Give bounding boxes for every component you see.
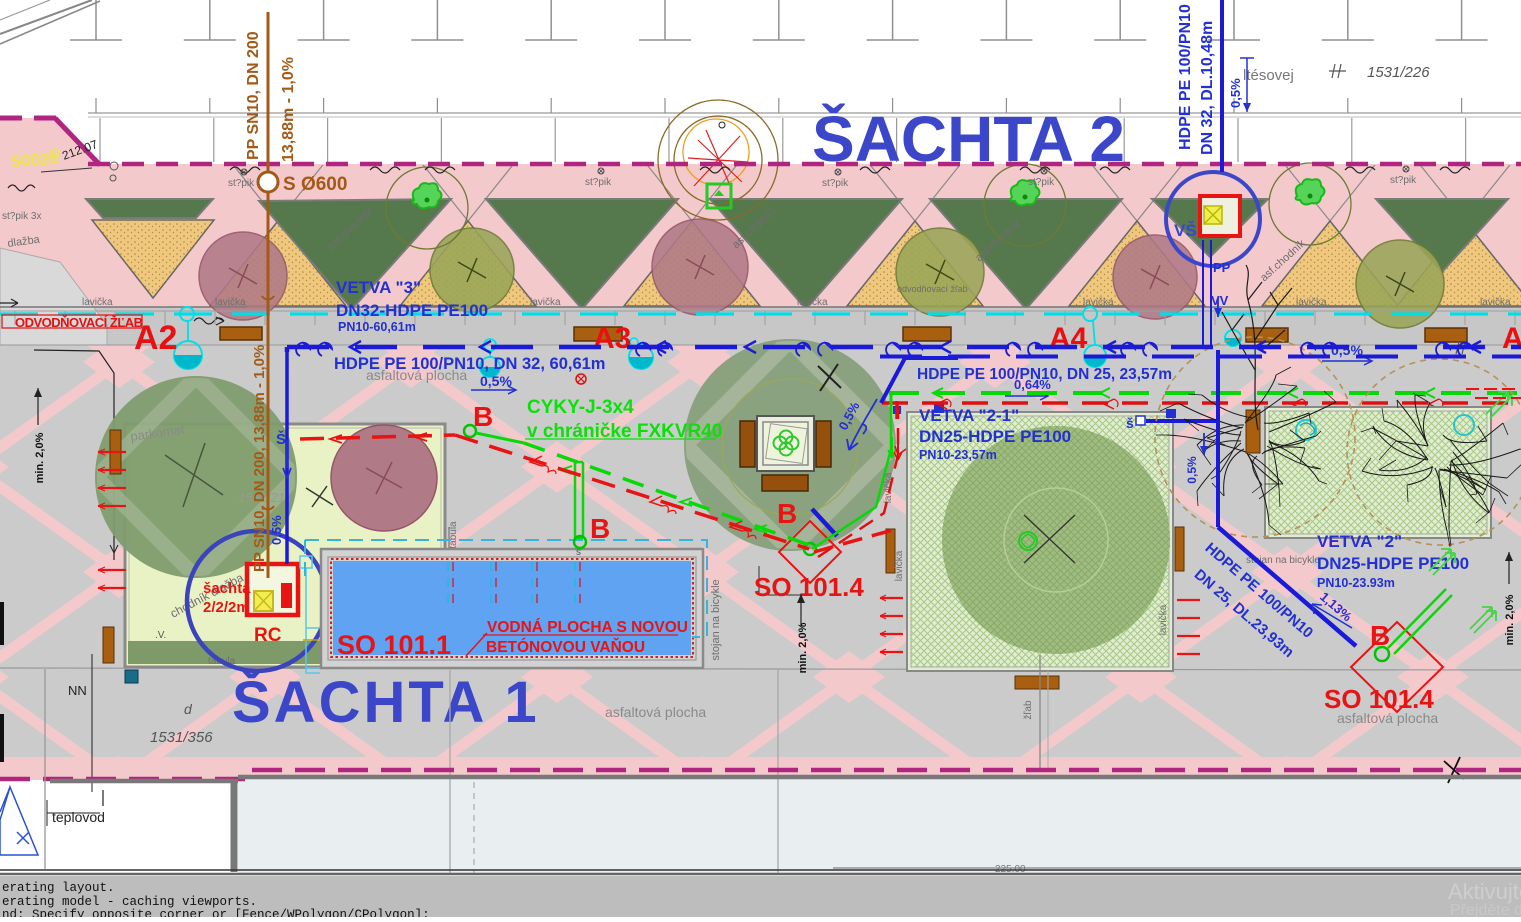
svg-text:st?pik: st?pik [1028,177,1055,188]
svg-text:lavička: lavička [1480,297,1511,308]
svg-text:A4: A4 [1049,322,1088,355]
svg-text:lavička: lavička [530,297,561,308]
svg-text:ŠACHTA 2: ŠACHTA 2 [812,102,1125,175]
svg-text:lavička: lavička [1158,604,1169,635]
svg-text:st?pik: st?pik [228,178,255,189]
svg-text:lavička: lavička [1296,297,1327,308]
svg-text:Aktivujte: Aktivujte [1448,879,1521,904]
svg-text:nd: Specify opposite corner or: nd: Specify opposite corner or [Fence/WP… [2,908,430,917]
svg-text:lavička: lavička [894,550,905,581]
svg-text:0,5%: 0,5% [269,515,284,545]
svg-text:st?pik: st?pik [1390,175,1417,186]
svg-text:.V.: .V. [155,630,166,641]
svg-text:CYKY-J-3x4: CYKY-J-3x4 [527,397,634,418]
svg-text:SO 101.4: SO 101.4 [1324,684,1434,714]
svg-text:HDPE PE 100/PN10, DN 32, 60,61: HDPE PE 100/PN10, DN 32, 60,61m [334,355,605,373]
svg-text:1531/356: 1531/356 [150,729,213,746]
svg-text:teplovod: teplovod [52,809,105,825]
svg-text:erating model - caching viewpo: erating model - caching viewports. [2,895,257,909]
svg-text:DN25-HDPE PE100: DN25-HDPE PE100 [1317,554,1469,573]
svg-text:RC: RC [254,625,282,646]
svg-text:B: B [777,498,797,529]
svg-text:PN10-23.93m: PN10-23.93m [1317,576,1395,590]
svg-text:lavička: lavička [1083,297,1114,308]
svg-text:asfaltová plocha: asfaltová plocha [605,704,706,720]
svg-text:lavička: lavička [215,297,246,308]
svg-text:SO 101.4: SO 101.4 [754,572,864,602]
svg-text:SO 101.1: SO 101.1 [337,630,451,660]
svg-text:š: š [1126,415,1134,431]
svg-text:50020: 50020 [11,149,59,171]
svg-text:B: B [590,513,610,544]
svg-text:DN32-HDPE PE100: DN32-HDPE PE100 [336,301,488,320]
svg-text:Přejděte do: Přejděte do [1450,902,1521,917]
svg-text:13,88m - 1,0%: 13,88m - 1,0% [280,57,297,162]
svg-text:lavička: lavička [82,297,113,308]
svg-text:ltésovej: ltésovej [1243,67,1294,84]
svg-text:VŠ: VŠ [1174,221,1197,240]
svg-text:0,5%: 0,5% [1185,456,1199,484]
svg-text:NN: NN [68,683,87,698]
svg-text:erating layout.: erating layout. [2,881,115,895]
svg-text:2/2/2m: 2/2/2m [203,599,250,616]
svg-text:BETÓNOVOU VAŇOU: BETÓNOVOU VAŇOU [486,638,645,656]
svg-text:PP SN10, DN 200: PP SN10, DN 200 [245,31,262,160]
svg-text:st?pik: st?pik [585,177,612,188]
svg-text:VETVA "3": VETVA "3" [336,278,421,297]
svg-text:A2: A2 [1502,322,1521,355]
svg-text:PN10-60,61m: PN10-60,61m [338,320,416,334]
svg-text:st?pik 3x: st?pik 3x [2,211,41,222]
svg-text:HDPE PE 100/PN10: HDPE PE 100/PN10 [1177,4,1194,150]
svg-text:1531/226: 1531/226 [1367,64,1430,81]
svg-text:S Ø600: S Ø600 [283,174,347,195]
svg-text:0,5%: 0,5% [1228,78,1243,108]
svg-text:min. 2,0%: min. 2,0% [797,622,809,673]
svg-text:PP SN10, DN 200, 13,88m - 1,0%: PP SN10, DN 200, 13,88m - 1,0% [251,345,268,572]
svg-text:min. 2,0%: min. 2,0% [1504,594,1516,645]
svg-text:DN 32, DL.10,48m: DN 32, DL.10,48m [1199,21,1216,155]
svg-text:DN25-HDPE PE100: DN25-HDPE PE100 [919,427,1071,446]
svg-text:PN10-23,57m: PN10-23,57m [919,448,997,462]
svg-text:lavička: lavička [797,297,828,308]
svg-text:VV: VV [1211,293,1229,308]
svg-text:A3: A3 [593,322,631,355]
svg-text:B: B [473,401,493,432]
svg-text:VETVA "2": VETVA "2" [1317,532,1402,551]
svg-text:stojan na bicykle: stojan na bicykle [710,579,722,660]
svg-text:d: d [184,701,193,717]
svg-text:st?pik: st?pik [822,178,849,189]
svg-text:VODNÁ PLOCHA S NOVOU: VODNÁ PLOCHA S NOVOU [487,619,688,636]
svg-text:PP: PP [1213,260,1231,275]
svg-text:žľab: žľab [1023,700,1034,719]
svg-text:ŠACHTA 1: ŠACHTA 1 [232,670,540,735]
svg-text:0,64%: 0,64% [1014,377,1051,392]
svg-text:šachta: šachta [203,580,251,597]
svg-text:Š: Š [276,430,286,448]
svg-text:tabula: tabula [448,521,459,549]
svg-text:ODVODŇOVACÍ ŽĽAB: ODVODŇOVACÍ ŽĽAB [15,315,143,330]
svg-text:VETVA "2-1": VETVA "2-1" [919,406,1019,425]
svg-text:0,5%: 0,5% [480,373,512,389]
svg-text:min. 2,0%: min. 2,0% [34,432,46,483]
svg-text:odvodňovací žľab: odvodňovací žľab [897,284,968,294]
